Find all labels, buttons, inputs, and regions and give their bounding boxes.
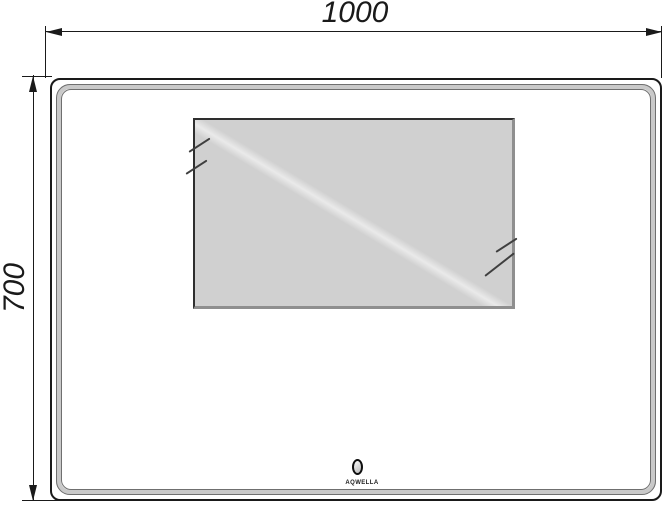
height-dimension-line [33, 75, 34, 501]
height-dimension-label: 700 [0, 228, 33, 348]
technical-drawing-canvas: 1000 700 AQWELLA [0, 0, 665, 510]
brand-logo: AQWELLA [322, 480, 402, 486]
width-extension-line-left [45, 26, 46, 78]
arrowhead-up-icon [29, 76, 37, 92]
arrowhead-right-icon [646, 28, 662, 36]
touch-sensor-icon [352, 459, 363, 475]
width-dimension-label: 1000 [255, 0, 455, 29]
width-extension-line-right [661, 26, 662, 78]
width-dimension-line [46, 31, 662, 32]
arrowhead-left-icon [46, 28, 62, 36]
glass-glare-band [193, 118, 515, 309]
height-extension-line-top [22, 76, 52, 77]
tv-screen-panel [193, 118, 515, 309]
arrowhead-down-icon [29, 485, 37, 501]
